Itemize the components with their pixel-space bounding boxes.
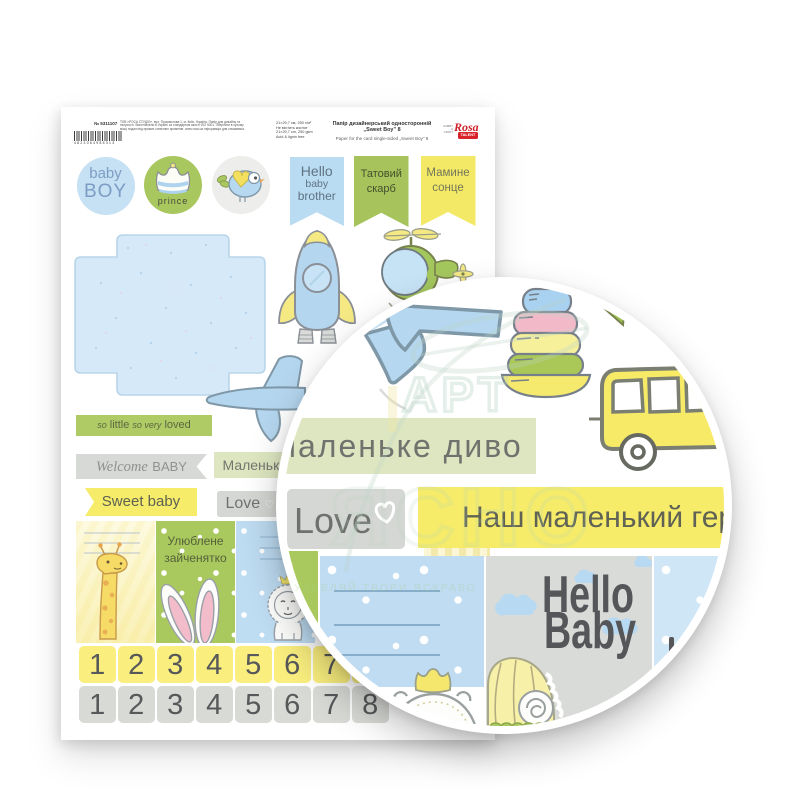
svg-text:prince: prince <box>158 196 189 206</box>
svg-text:Baby: Baby <box>544 602 636 660</box>
